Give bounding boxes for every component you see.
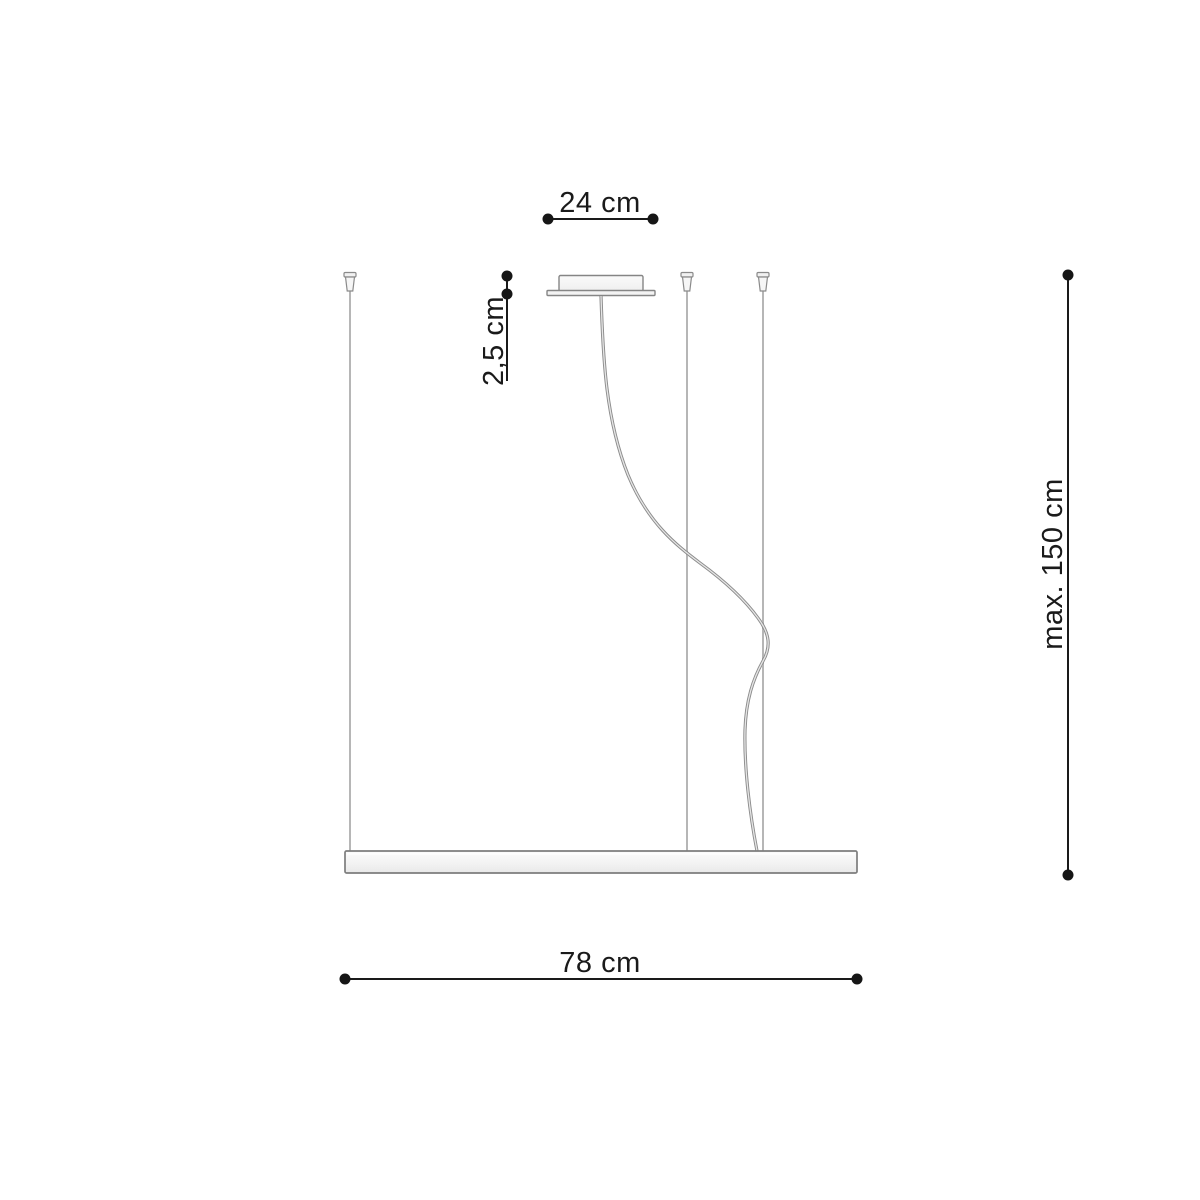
suspension-wire-left: [344, 273, 356, 852]
drawing-canvas: [0, 0, 1200, 1200]
max-drop-label: max. 150 cm: [1037, 464, 1069, 664]
wire-gripper-icon: [344, 273, 356, 292]
suspension-wire-right: [757, 273, 769, 852]
wire-gripper-icon: [757, 273, 769, 292]
canopy-height-label: 2,5 cm: [479, 276, 509, 406]
wire-gripper-icon: [681, 273, 693, 292]
dim-dot: [852, 974, 863, 985]
suspension-wire-center: [681, 273, 693, 852]
lamp-bar: [345, 851, 857, 873]
dim-dot: [1063, 270, 1074, 281]
power-cable: [601, 296, 768, 851]
dim-dot: [1063, 870, 1074, 881]
ceiling-canopy: [547, 276, 655, 296]
lamp-width-label: 78 cm: [540, 948, 660, 978]
dim-dot: [340, 974, 351, 985]
canopy-width-label: 24 cm: [540, 188, 660, 218]
dimension-drawing: 24 cm 2,5 cm max. 150 cm 78 cm: [0, 0, 1200, 1200]
